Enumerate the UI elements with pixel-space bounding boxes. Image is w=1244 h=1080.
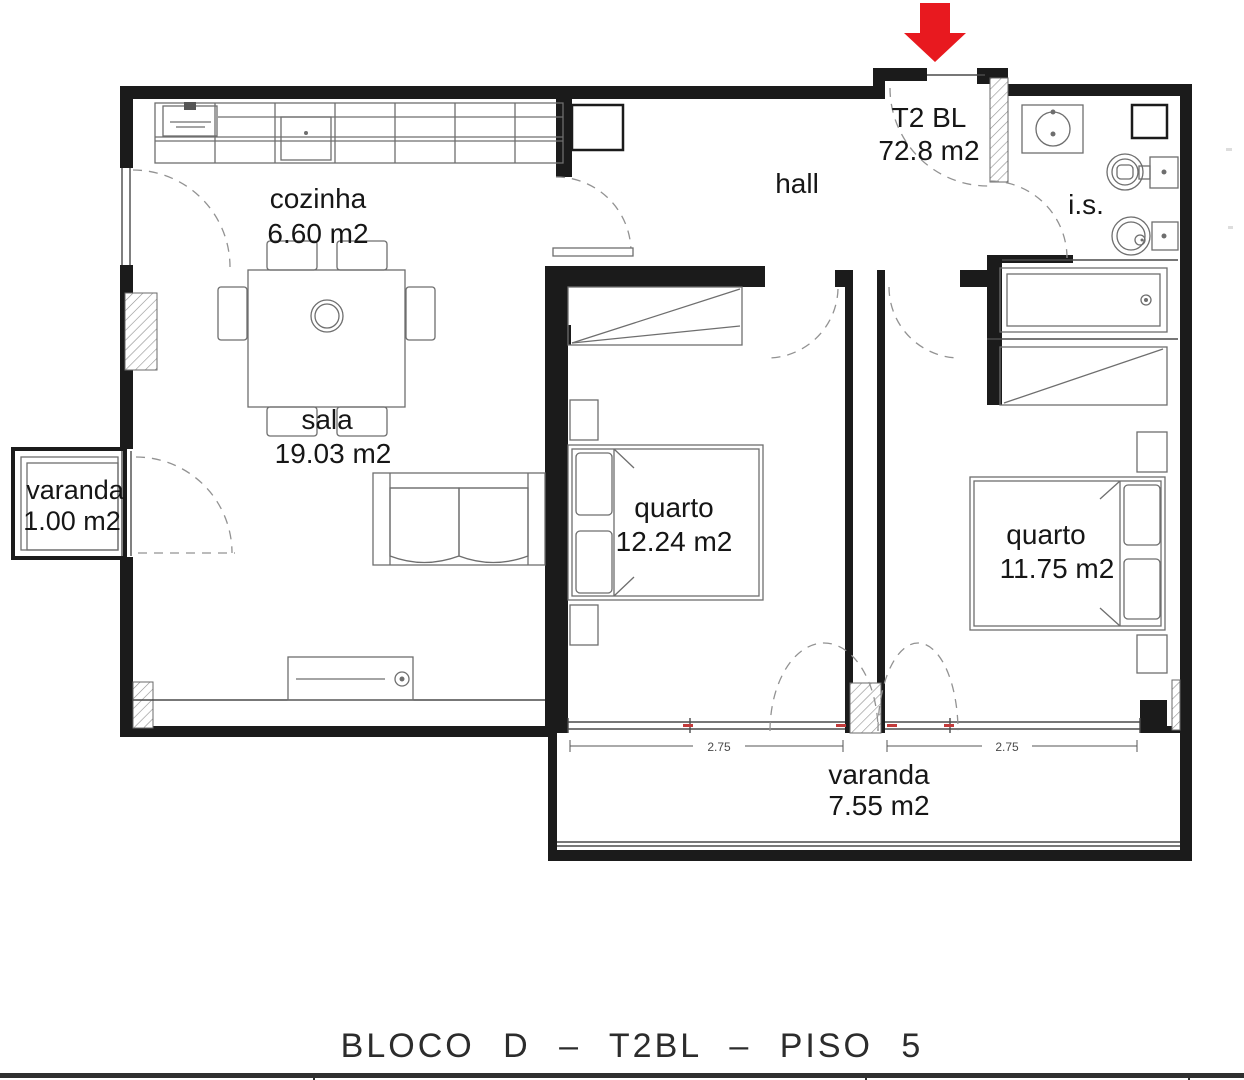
wardrobe: [1000, 347, 1167, 405]
sofa: [373, 473, 545, 565]
area-sala: 19.03 m2: [275, 438, 392, 469]
label-varanda-big: varanda: [828, 759, 930, 790]
quarto1-door-arc: [767, 289, 838, 358]
kitchen-window-arc: [133, 170, 230, 267]
area-varanda-big: 7.55 m2: [828, 790, 929, 821]
area-quarto1: 12.24 m2: [616, 526, 733, 557]
nightstand: [1137, 432, 1167, 472]
area-quarto2: 11.75 m2: [1000, 553, 1115, 584]
label-quarto2: quarto: [1006, 519, 1085, 550]
wardrobe: [568, 287, 742, 345]
washbasin: [1022, 105, 1083, 153]
nightstand: [570, 605, 598, 645]
floor-plan-page: cozinha 6.60 m2 sala 19.03 m2 varanda 1.…: [0, 0, 1244, 1080]
sala-door-leaf: [553, 248, 633, 256]
area-varanda-small: 1.00 m2: [23, 506, 121, 536]
label-hall: hall: [775, 168, 819, 199]
quarto2-door-arc: [889, 287, 960, 358]
varanda-door-arc: [136, 457, 232, 553]
nightstand: [570, 400, 598, 440]
balcony-window-arc-right: [878, 643, 958, 731]
dimension-lines: [570, 740, 1137, 752]
pillow: [1124, 559, 1160, 619]
nightstand: [1137, 635, 1167, 673]
chair: [218, 287, 247, 340]
kitchen-duct: [572, 105, 623, 150]
quarto2-furniture: [970, 347, 1167, 673]
chair: [406, 287, 435, 340]
dimension-label-left: 2.75: [707, 740, 731, 754]
entrance-arrow-icon: [904, 3, 966, 62]
quarto1-furniture: [568, 287, 763, 645]
bidet: [1112, 217, 1178, 255]
label-is: i.s.: [1068, 189, 1104, 220]
cooktop: [281, 117, 331, 160]
toilet: [1107, 154, 1178, 190]
label-quarto1: quarto: [634, 492, 713, 523]
title-block-edge: [0, 1073, 1244, 1080]
pillow: [576, 453, 612, 515]
area-cozinha: 6.60 m2: [267, 218, 368, 249]
tv-sideboard: [288, 657, 413, 700]
unit-area: 72.8 m2: [878, 135, 979, 166]
plan-title: BLOCO D – T2BL – PISO 5: [341, 1027, 924, 1065]
window-red-marks: [683, 724, 954, 727]
room-labels: cozinha 6.60 m2 sala 19.03 m2 varanda 1.…: [23, 102, 1114, 1065]
floor-plan-canvas: cozinha 6.60 m2 sala 19.03 m2 varanda 1.…: [0, 0, 1244, 1080]
label-sala: sala: [301, 404, 353, 435]
bathtub: [1000, 268, 1167, 332]
pillow: [576, 531, 612, 593]
kitchen-sink: [163, 102, 217, 136]
pillow: [1124, 485, 1160, 545]
kitchen-counter: [155, 102, 563, 163]
dimension-label-right: 2.75: [995, 740, 1019, 754]
sala-door-arc: [556, 177, 631, 252]
is-door-arc: [990, 181, 1067, 258]
shaft-box: [1132, 105, 1167, 138]
label-cozinha: cozinha: [270, 183, 367, 214]
unit-name: T2 BL: [892, 102, 967, 133]
label-varanda-small: varanda: [26, 475, 125, 505]
